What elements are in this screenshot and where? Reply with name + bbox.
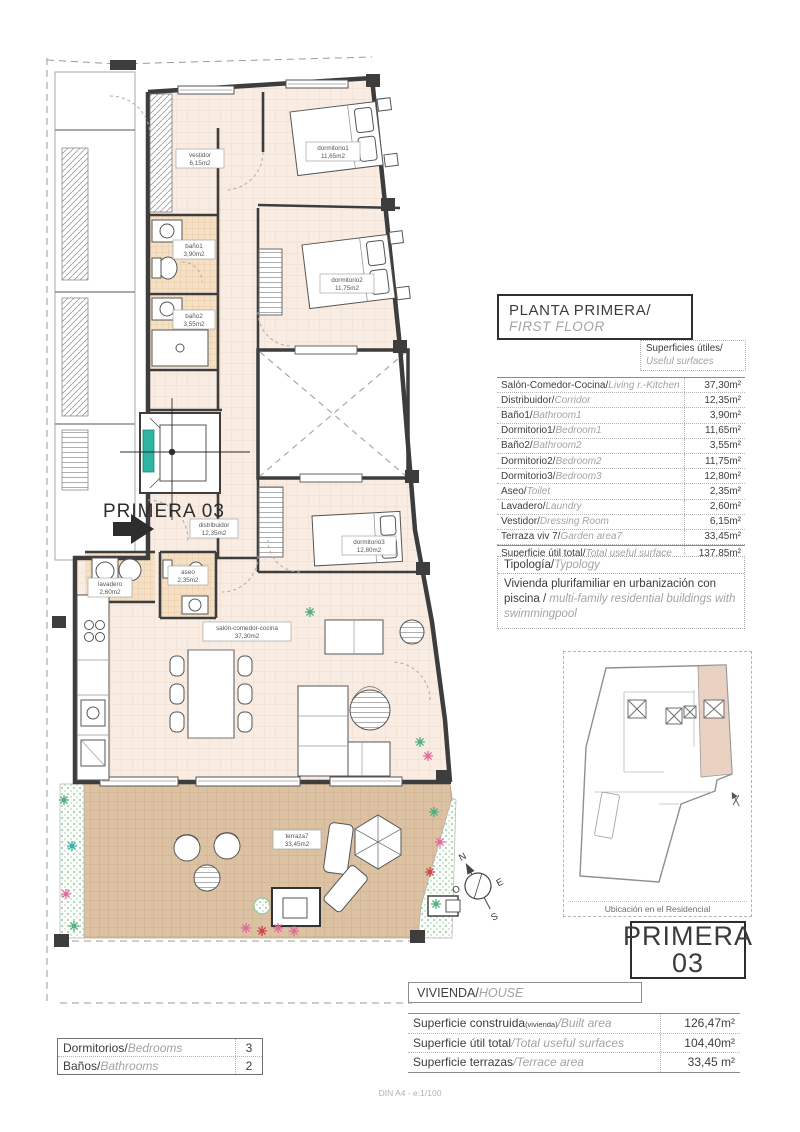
unit-badge-line1: PRIMERA	[623, 923, 753, 950]
svg-text:2,35m2: 2,35m2	[177, 577, 199, 584]
kitchen	[77, 595, 109, 780]
floor-title-box: PLANTA PRIMERA/ FIRST FLOOR	[497, 294, 693, 340]
svg-text:3,55m2: 3,55m2	[183, 321, 205, 328]
table-row: Lavadero/Laundry2,60m²	[497, 500, 745, 515]
svg-text:12,35m2: 12,35m2	[202, 530, 227, 537]
house-totals-table: Superficie construida(vivienda)/Built ar…	[408, 1013, 740, 1073]
bed-dormitorio1	[290, 98, 399, 178]
table-row: Dormitorio1/Bedroom111,65m²	[497, 424, 745, 439]
dining-set	[170, 650, 252, 738]
neighbour-unit	[52, 60, 136, 628]
unit-badge: PRIMERA 03	[630, 921, 746, 979]
vivienda-label-box: VIVIENDA/ HOUSE	[408, 982, 642, 1003]
svg-text:vestidor: vestidor	[189, 152, 211, 159]
location-caption: Ubicación en el Residencial	[568, 901, 747, 914]
table-row: Distribuidor/Corridor12,35m²	[497, 393, 745, 408]
svg-text:baño2: baño2	[185, 313, 203, 320]
table-row: Vestidor/Dressing Room6,15m²	[497, 515, 745, 530]
svg-text:37,30m2: 37,30m2	[235, 633, 260, 640]
svg-text:33,45m2: 33,45m2	[285, 841, 310, 848]
table-row: Dormitorio3/Bedroom312,80m²	[497, 469, 745, 484]
room-counts-table: Dormitorios/Bedrooms 3 Baños/Bathrooms 2	[57, 1038, 263, 1075]
table-row: Salón-Comedor-Cocina/Living r.-Kitchen37…	[497, 378, 745, 393]
mini-compass-icon	[728, 791, 744, 809]
table-row: Superficie terrazas/Terrace area 33,45 m…	[408, 1053, 740, 1072]
surfaces-caption: Superficies útiles/ Useful surfaces	[640, 340, 746, 371]
sheet-scale-note: DIN A4 - e:1/100	[320, 1088, 500, 1098]
table-row: Superficie útil total/Total useful surfa…	[408, 1034, 740, 1054]
table-row: Baños/Bathrooms 2	[58, 1057, 262, 1074]
table-row: Superficie construida(vivienda)/Built ar…	[408, 1014, 740, 1034]
floor-title-en: FIRST FLOOR	[509, 319, 681, 334]
svg-text:3,90m2: 3,90m2	[183, 251, 205, 258]
table-row: Dormitorios/Bedrooms 3	[58, 1039, 262, 1057]
svg-text:11,65m2: 11,65m2	[321, 153, 346, 160]
svg-text:11,75m2: 11,75m2	[335, 285, 360, 292]
table-row: Baño1/Bathroom13,90m²	[497, 408, 745, 423]
svg-text:distribuidor: distribuidor	[199, 522, 230, 529]
svg-text:salón-comedor-cocina: salón-comedor-cocina	[216, 625, 278, 632]
svg-text:dormitorio2: dormitorio2	[331, 277, 363, 284]
svg-text:2,60m2: 2,60m2	[99, 589, 121, 596]
location-mini-map	[564, 652, 751, 892]
table-row: Dormitorio2/Bedroom211,75m²	[497, 454, 745, 469]
surfaces-table: Salón-Comedor-Cocina/Living r.-Kitchen37…	[497, 377, 745, 563]
unit-badge-line2: 03	[672, 950, 704, 977]
table-row: Baño2/Bathroom23,55m²	[497, 439, 745, 454]
table-row: Terraza viv 7/Garden area733,45m²	[497, 530, 745, 545]
svg-text:dormitorio3: dormitorio3	[353, 539, 385, 546]
svg-text:12,80m2: 12,80m2	[357, 547, 382, 554]
location-map-box: Ubicación en el Residencial	[563, 651, 752, 917]
svg-text:baño1: baño1	[185, 243, 203, 250]
svg-text:lavadero: lavadero	[98, 581, 123, 588]
svg-text:6,15m2: 6,15m2	[189, 160, 211, 167]
svg-text:dormitorio1: dormitorio1	[317, 145, 349, 152]
table-row: Aseo/Toilet2,35m²	[497, 484, 745, 499]
svg-text:aseo: aseo	[181, 569, 195, 576]
typology-box: Tipología/Typology Vivienda plurifamilia…	[497, 556, 745, 629]
svg-text:S: S	[489, 911, 500, 924]
floorplan-sheet: PRIMERA 03 vestidor6,15m2 dormitorio111,…	[0, 0, 800, 1132]
svg-text:E: E	[495, 876, 506, 889]
patio-lightwell	[258, 346, 408, 482]
svg-text:N: N	[457, 851, 468, 864]
svg-text:terraza7: terraza7	[285, 833, 309, 840]
floor-title-es: PLANTA PRIMERA/	[509, 302, 681, 319]
terrace	[60, 784, 456, 938]
